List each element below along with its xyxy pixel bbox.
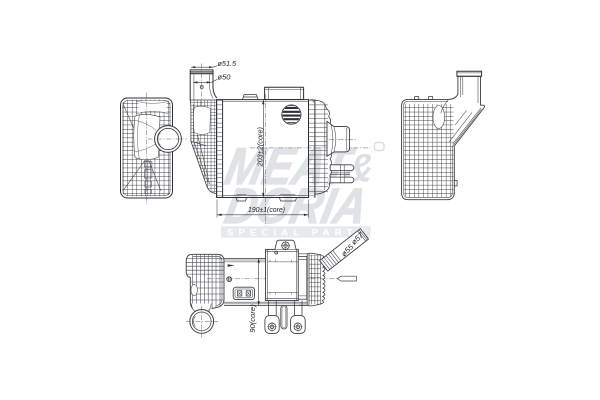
svg-text:90(core): 90(core) [249,304,257,333]
svg-text:ø51.5: ø51.5 [218,61,237,68]
svg-text:DORIA: DORIA [220,178,372,234]
svg-text:203±2(core): 203±2(core) [255,127,264,168]
svg-text:ø50: ø50 [218,75,231,82]
svg-text:190±1(core): 190±1(core) [248,205,286,214]
